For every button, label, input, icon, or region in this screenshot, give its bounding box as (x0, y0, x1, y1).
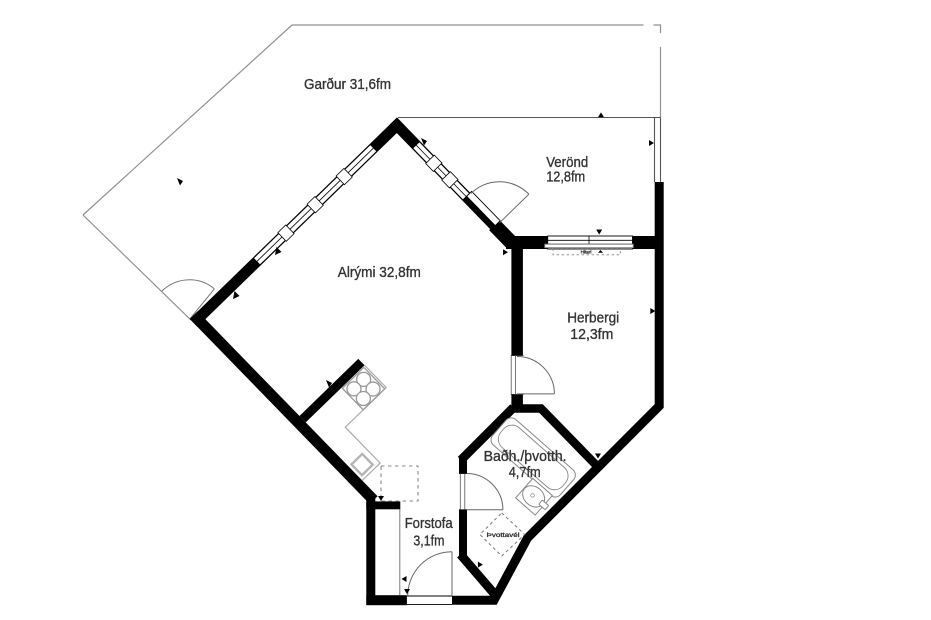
svg-text:Forstofa: Forstofa (405, 515, 454, 532)
svg-text:Garður 31,6fm: Garður 31,6fm (304, 76, 391, 93)
svg-text:Baðh./þvotth.: Baðh./þvotth. (484, 448, 567, 465)
svg-text:12,8fm: 12,8fm (546, 169, 585, 186)
svg-text:4,7fm: 4,7fm (509, 464, 541, 481)
svg-text:12,3fm: 12,3fm (570, 326, 613, 343)
svg-text:Herbergi: Herbergi (567, 309, 619, 326)
svg-text:3,1fm: 3,1fm (413, 532, 444, 549)
svg-text:Þvottavél: Þvottavél (487, 532, 521, 539)
svg-text:Hitari: Hitari (581, 250, 592, 255)
svg-text:Alrými 32,8fm: Alrými 32,8fm (338, 264, 421, 281)
